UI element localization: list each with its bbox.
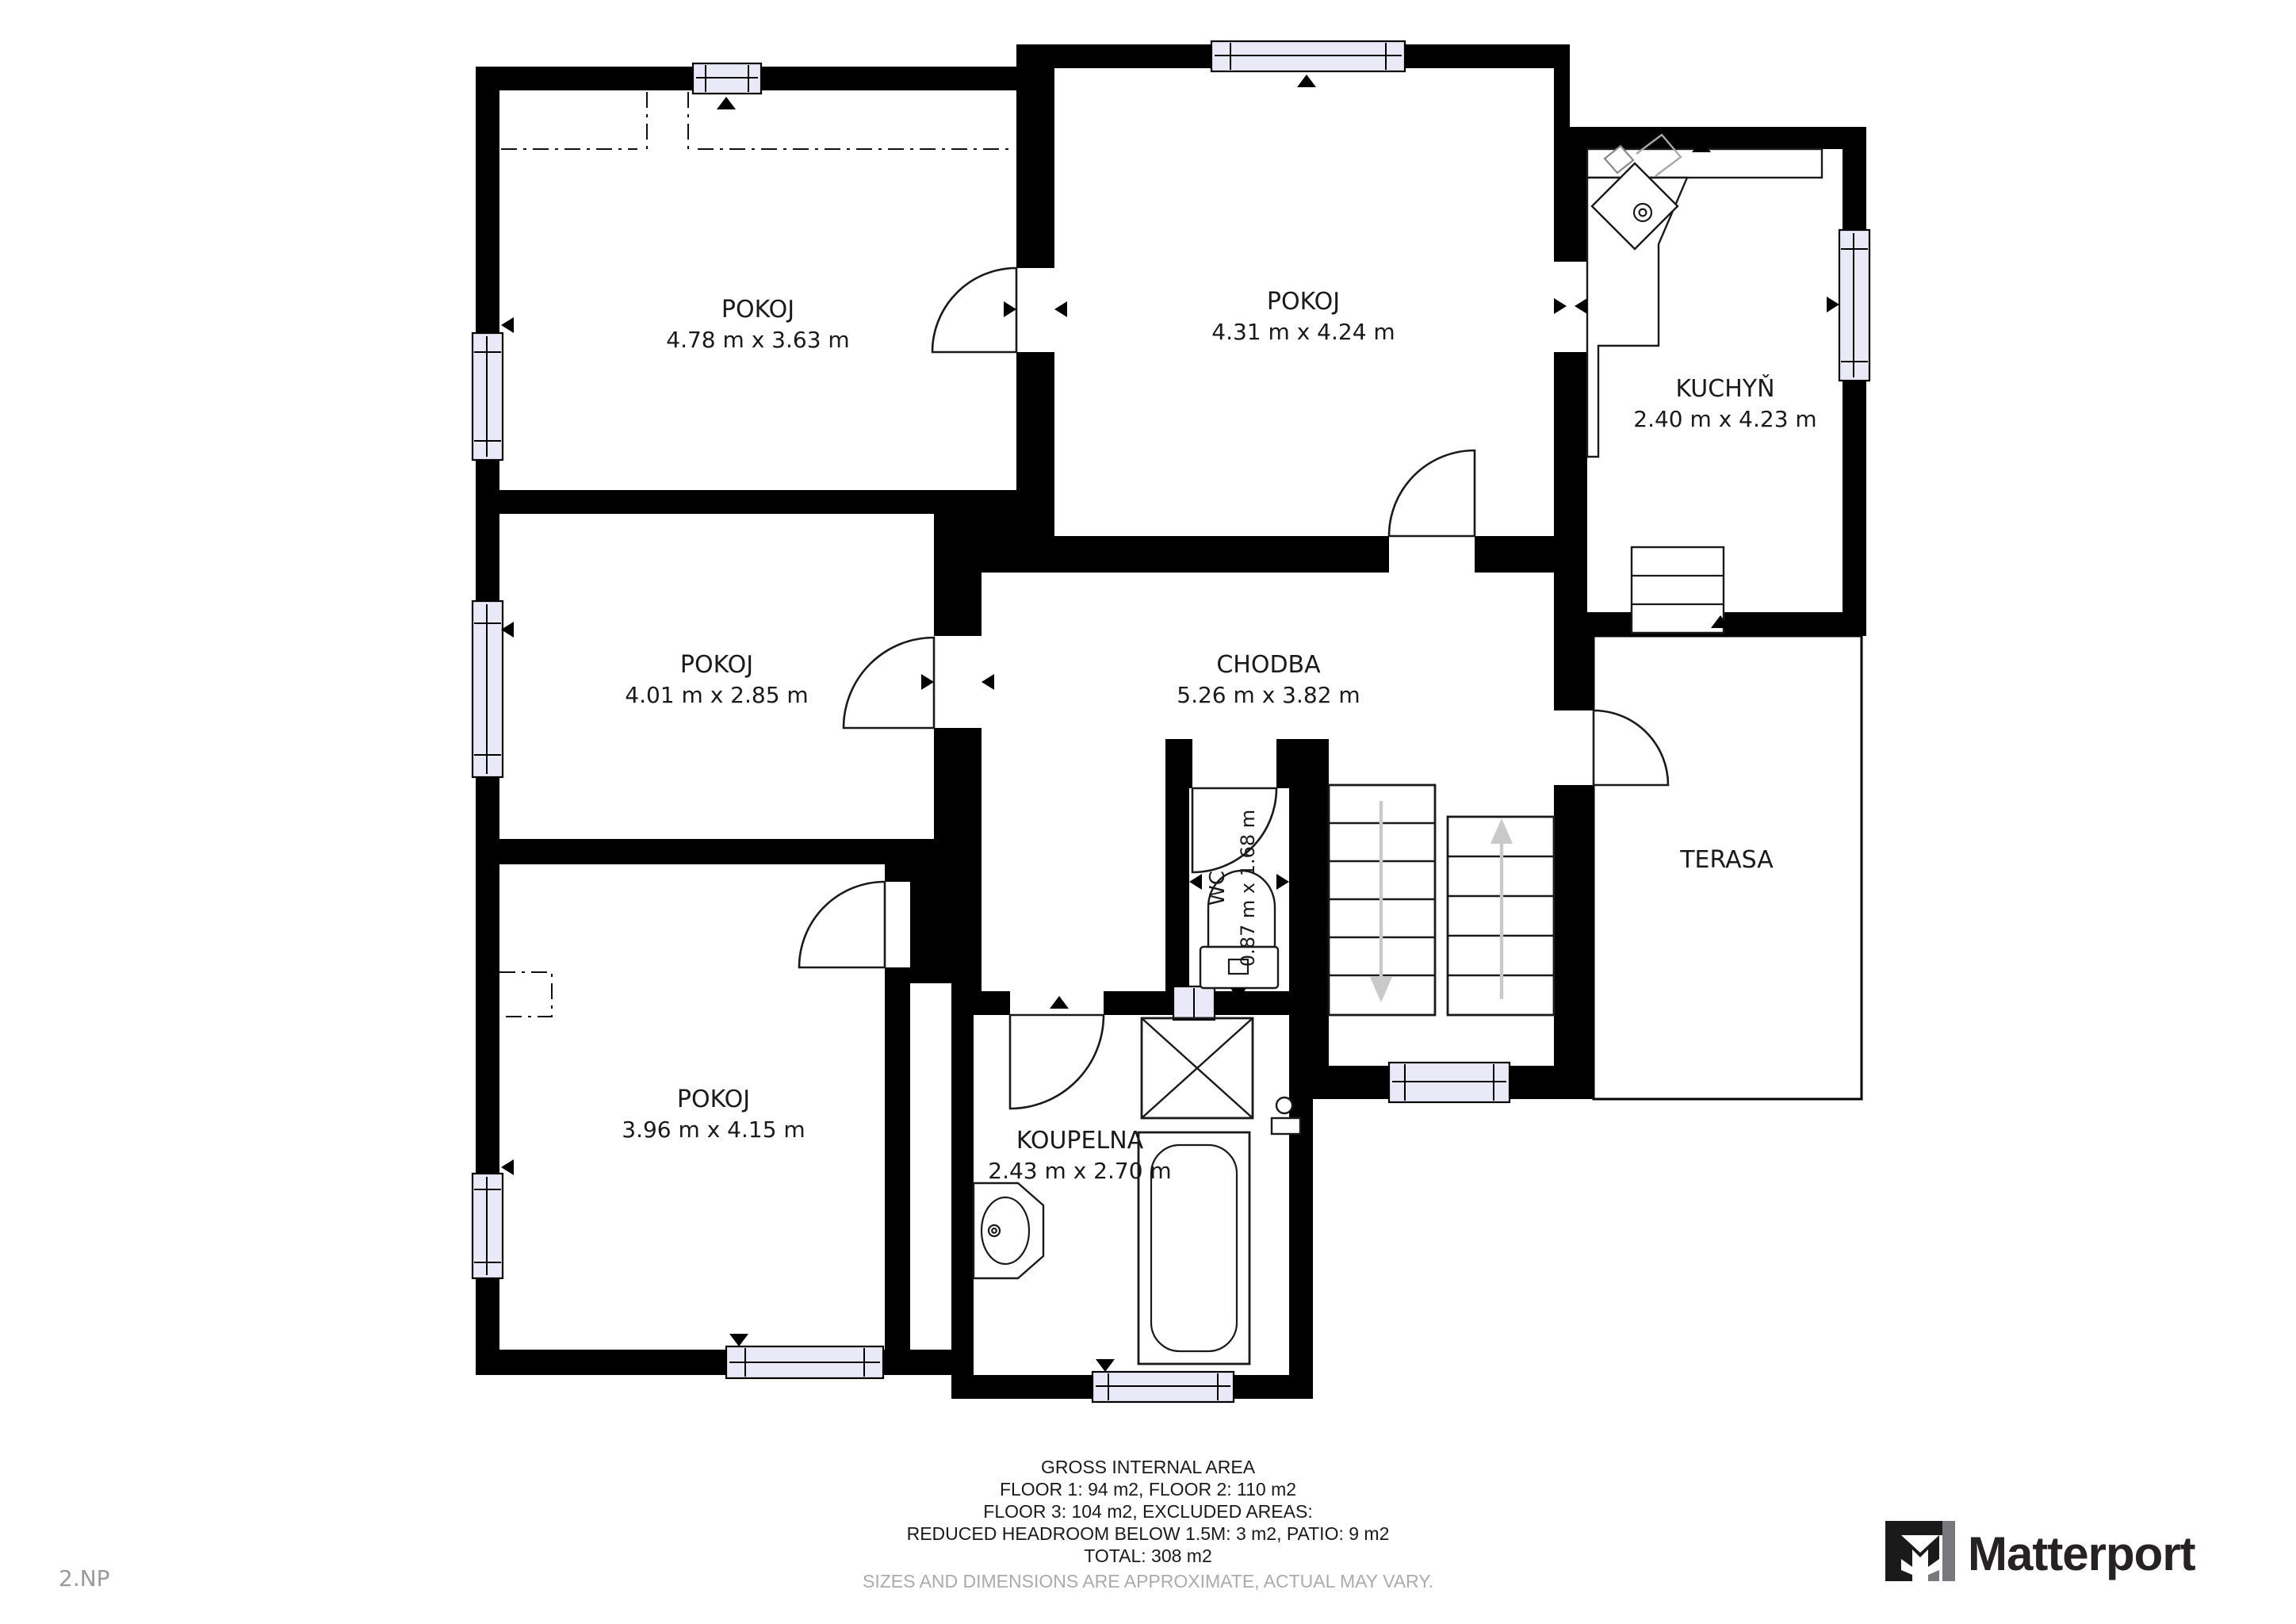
room-dims-pokoj-top-left: 4.78 m x 3.63 m <box>666 327 849 353</box>
room-dims-kuchyn: 2.40 m x 4.23 m <box>1633 406 1816 432</box>
floor-label: 2.NP <box>59 1565 110 1591</box>
window-icon <box>1389 1063 1510 1102</box>
room-label-kuchyn: KUCHYŇ <box>1675 374 1774 403</box>
room-label-koupelna: KOUPELNA <box>1016 1127 1144 1155</box>
bathroom-sink-icon <box>974 1183 1043 1278</box>
room-label-pokoj-bottom-left: POKOJ <box>677 1086 750 1113</box>
window-icon <box>693 63 761 94</box>
floorplan-canvas: POKOJ 4.78 m x 3.63 m POKOJ 4.31 m x 4.2… <box>0 0 2296 1624</box>
window-icon <box>1093 1372 1234 1402</box>
stair-hall <box>1329 739 1554 1066</box>
summary-title: GROSS INTERNAL AREA <box>1041 1457 1256 1477</box>
window-icon <box>1173 986 1215 1020</box>
summary-floors-1-2: FLOOR 1: 94 m2, FLOOR 2: 110 m2 <box>1000 1479 1296 1500</box>
summary-disclaimer: SIZES AND DIMENSIONS ARE APPROXIMATE, AC… <box>863 1571 1433 1591</box>
terrace-steps-icon <box>1632 547 1724 633</box>
summary-excluded: REDUCED HEADROOM BELOW 1.5M: 3 m2, PATIO… <box>907 1523 1390 1544</box>
matterport-logo: Matterport <box>1885 1521 2196 1581</box>
summary-total: TOTAL: 308 m2 <box>1084 1545 1212 1566</box>
window-icon <box>473 601 503 777</box>
room-dims-pokoj-middle-left: 4.01 m x 2.85 m <box>625 682 808 708</box>
room-dims-koupelna: 2.43 m x 2.70 m <box>988 1158 1171 1184</box>
room-chodba-lower <box>982 739 1165 991</box>
brand-name: Matterport <box>1968 1527 2196 1580</box>
void-strip <box>910 983 951 1350</box>
window-icon <box>1839 230 1869 381</box>
window-icon <box>473 333 503 460</box>
matterport-mark-icon <box>1885 1521 1955 1581</box>
floorplan-page: POKOJ 4.78 m x 3.63 m POKOJ 4.31 m x 4.2… <box>0 0 2296 1624</box>
room-label-terasa: TERASA <box>1679 846 1774 874</box>
window-icon <box>1211 41 1405 71</box>
room-pokoj-top-left <box>499 90 1016 490</box>
room-label-wc: WC <box>1206 871 1230 906</box>
room-dims-wc: 0.87 m x 1.68 m <box>1237 810 1259 967</box>
window-icon <box>473 1174 503 1278</box>
room-dims-chodba: 5.26 m x 3.82 m <box>1177 682 1360 708</box>
room-label-chodba: CHODBA <box>1216 651 1321 679</box>
room-dims-pokoj-bottom-left: 3.96 m x 4.15 m <box>622 1116 805 1143</box>
window-icon <box>726 1346 883 1378</box>
room-label-pokoj-middle-left: POKOJ <box>680 651 753 679</box>
area-summary: GROSS INTERNAL AREA FLOOR 1: 94 m2, FLOO… <box>863 1457 1433 1591</box>
room-label-pokoj-top-left: POKOJ <box>721 296 794 324</box>
room-dims-pokoj-top-right: 4.31 m x 4.24 m <box>1211 319 1395 345</box>
summary-floor-3: FLOOR 3: 104 m2, EXCLUDED AREAS: <box>983 1501 1312 1522</box>
room-label-pokoj-top-right: POKOJ <box>1267 288 1340 316</box>
